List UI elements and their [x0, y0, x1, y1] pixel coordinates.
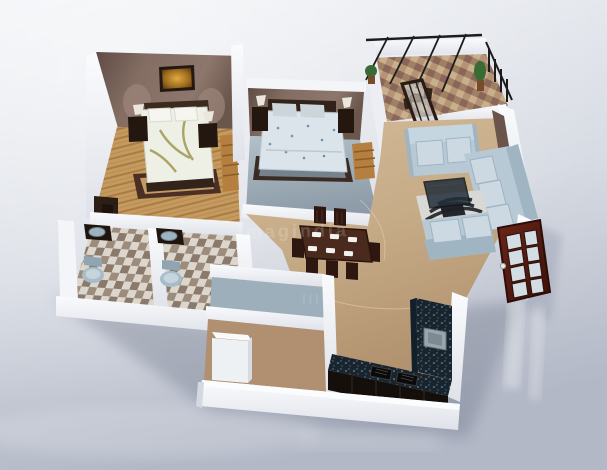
bathroom1-toilet: [82, 256, 104, 283]
bedroom2-bed: [259, 99, 347, 172]
pillow: [272, 103, 297, 117]
glass-coffee-table: [424, 178, 470, 208]
outer-wall-stub: [58, 54, 72, 82]
bedroom-divider-wall: [231, 44, 245, 162]
watermark-text-partial: ill: [302, 292, 322, 307]
floor-plan-render: Imagindia ill: [0, 0, 607, 470]
door-knob: [500, 263, 505, 268]
bathroom2-basin: [156, 228, 184, 245]
entry-door: [498, 220, 550, 302]
watermark-text: Imagindia: [238, 220, 349, 242]
pillow: [174, 107, 198, 121]
wall-art: [159, 65, 195, 92]
pillow: [148, 108, 172, 122]
room-utility: [204, 264, 338, 394]
two-seat-sofa: [422, 212, 496, 260]
kitchen-sink: [424, 328, 446, 350]
floor-plan-canvas: Imagindia ill: [0, 0, 607, 470]
room-bedroom-2: [241, 78, 378, 228]
pillow: [300, 104, 325, 118]
bedroom2-bench: [352, 142, 375, 180]
bathroom1-basin: [84, 224, 112, 241]
room-master-bedroom: [58, 44, 245, 228]
bathroom2-toilet: [160, 260, 182, 287]
